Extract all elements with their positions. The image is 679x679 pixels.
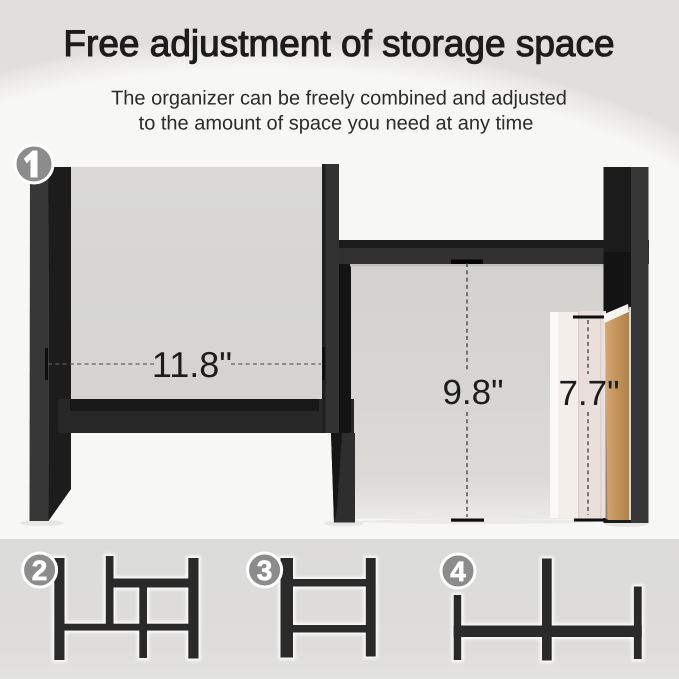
svg-text:11.8": 11.8" bbox=[152, 344, 232, 385]
svg-text:to the amount of space you nee: to the amount of space you need at any t… bbox=[139, 113, 534, 135]
svg-text:Free adjustment of storage spa: Free adjustment of storage space bbox=[63, 23, 614, 64]
svg-text:3: 3 bbox=[257, 555, 273, 586]
svg-text:9.8": 9.8" bbox=[442, 373, 503, 412]
svg-text:7.7": 7.7" bbox=[558, 374, 619, 413]
svg-text:4: 4 bbox=[450, 556, 466, 587]
svg-text:2: 2 bbox=[32, 555, 48, 586]
svg-text:The organizer can be freely co: The organizer can be freely combined and… bbox=[111, 88, 567, 110]
